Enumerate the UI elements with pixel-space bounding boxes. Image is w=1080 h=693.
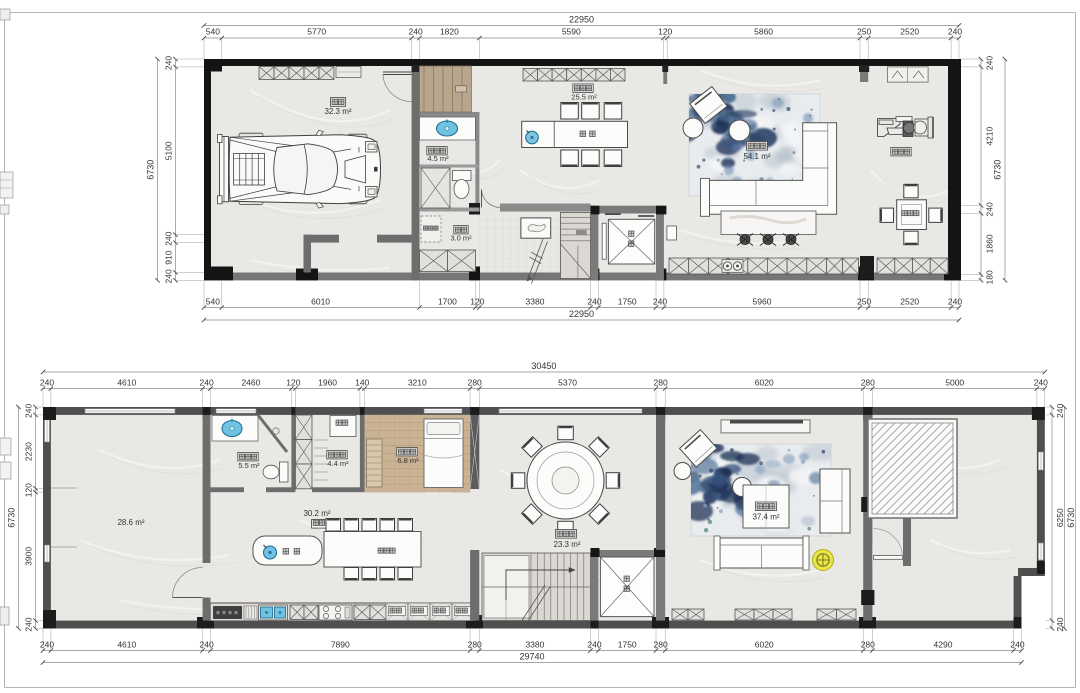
svg-text:3380: 3380	[526, 297, 545, 307]
svg-text:4610: 4610	[117, 378, 136, 388]
svg-text:5590: 5590	[562, 27, 581, 37]
svg-text:280: 280	[468, 378, 482, 388]
svg-text:2460: 2460	[241, 378, 260, 388]
svg-text:6020: 6020	[755, 378, 774, 388]
svg-text:540: 540	[206, 297, 220, 307]
svg-text:22950: 22950	[569, 15, 594, 25]
svg-text:240: 240	[587, 640, 601, 650]
svg-text:1700: 1700	[438, 297, 457, 307]
svg-text:140: 140	[355, 378, 369, 388]
svg-text:6250: 6250	[1055, 508, 1065, 527]
svg-text:2230: 2230	[24, 442, 34, 461]
svg-text:30450: 30450	[531, 361, 556, 371]
svg-text:5770: 5770	[307, 27, 326, 37]
svg-text:240: 240	[24, 404, 34, 418]
svg-text:280: 280	[654, 640, 668, 650]
svg-text:240: 240	[40, 640, 54, 650]
svg-text:6020: 6020	[755, 640, 774, 650]
svg-text:240: 240	[587, 297, 601, 307]
svg-text:120: 120	[658, 27, 672, 37]
svg-text:28.6 m²: 28.6 m²	[117, 518, 144, 527]
svg-text:240: 240	[200, 378, 214, 388]
svg-text:3210: 3210	[408, 378, 427, 388]
svg-text:6.8 m²: 6.8 m²	[397, 456, 419, 465]
svg-text:250: 250	[857, 297, 871, 307]
svg-text:6730: 6730	[993, 160, 1003, 180]
svg-text:240: 240	[1010, 640, 1024, 650]
svg-text:240: 240	[1055, 617, 1065, 631]
svg-text:1960: 1960	[318, 378, 337, 388]
svg-text:4.4 m²: 4.4 m²	[327, 459, 349, 468]
svg-text:280: 280	[861, 640, 875, 650]
svg-text:240: 240	[948, 297, 962, 307]
svg-text:2520: 2520	[900, 297, 919, 307]
svg-text:240: 240	[164, 56, 174, 70]
svg-text:7890: 7890	[331, 640, 350, 650]
svg-text:6010: 6010	[311, 297, 330, 307]
svg-text:29740: 29740	[519, 652, 544, 662]
svg-text:240: 240	[164, 231, 174, 245]
svg-text:240: 240	[985, 202, 995, 216]
svg-text:5960: 5960	[753, 297, 772, 307]
svg-text:910: 910	[164, 250, 174, 264]
svg-text:120: 120	[470, 297, 484, 307]
svg-text:240: 240	[409, 27, 423, 37]
svg-text:3380: 3380	[525, 640, 544, 650]
svg-text:180: 180	[985, 270, 995, 284]
svg-text:3.0 m²: 3.0 m²	[450, 234, 472, 243]
svg-text:4.5 m²: 4.5 m²	[427, 154, 449, 163]
svg-text:4610: 4610	[117, 640, 136, 650]
svg-text:240: 240	[164, 269, 174, 283]
svg-text:240: 240	[948, 27, 962, 37]
svg-text:540: 540	[206, 27, 220, 37]
svg-text:5000: 5000	[945, 378, 964, 388]
svg-text:23.3 m²: 23.3 m²	[553, 540, 580, 549]
svg-text:2520: 2520	[900, 27, 919, 37]
svg-text:240: 240	[40, 378, 54, 388]
svg-text:280: 280	[861, 378, 875, 388]
svg-text:240: 240	[1034, 378, 1048, 388]
svg-text:5370: 5370	[558, 378, 577, 388]
svg-text:25.5 m²: 25.5 m²	[571, 93, 597, 102]
svg-text:280: 280	[468, 640, 482, 650]
svg-text:1820: 1820	[440, 27, 459, 37]
svg-text:4210: 4210	[985, 126, 995, 145]
svg-text:6730: 6730	[1066, 508, 1076, 528]
svg-text:240: 240	[985, 56, 995, 70]
svg-text:5100: 5100	[164, 141, 174, 160]
svg-text:5.5 m²: 5.5 m²	[238, 461, 260, 470]
svg-text:1860: 1860	[985, 234, 995, 253]
svg-text:5860: 5860	[754, 27, 773, 37]
svg-text:54.1 m²: 54.1 m²	[743, 152, 770, 161]
svg-text:1750: 1750	[618, 297, 637, 307]
svg-text:6730: 6730	[146, 160, 156, 180]
svg-text:6730: 6730	[7, 508, 17, 528]
svg-text:280: 280	[654, 378, 668, 388]
svg-text:120: 120	[286, 378, 300, 388]
svg-text:240: 240	[653, 297, 667, 307]
svg-text:240: 240	[24, 617, 34, 631]
svg-text:120: 120	[24, 483, 34, 497]
svg-text:250: 250	[857, 27, 871, 37]
svg-text:30.2 m²: 30.2 m²	[303, 509, 330, 518]
svg-text:240: 240	[200, 640, 214, 650]
svg-text:37.4 m²: 37.4 m²	[752, 513, 779, 522]
svg-text:1750: 1750	[618, 640, 637, 650]
svg-text:4290: 4290	[934, 640, 953, 650]
svg-text:32.3 m²: 32.3 m²	[324, 107, 351, 116]
svg-text:3900: 3900	[24, 547, 34, 566]
svg-text:22950: 22950	[569, 309, 594, 319]
